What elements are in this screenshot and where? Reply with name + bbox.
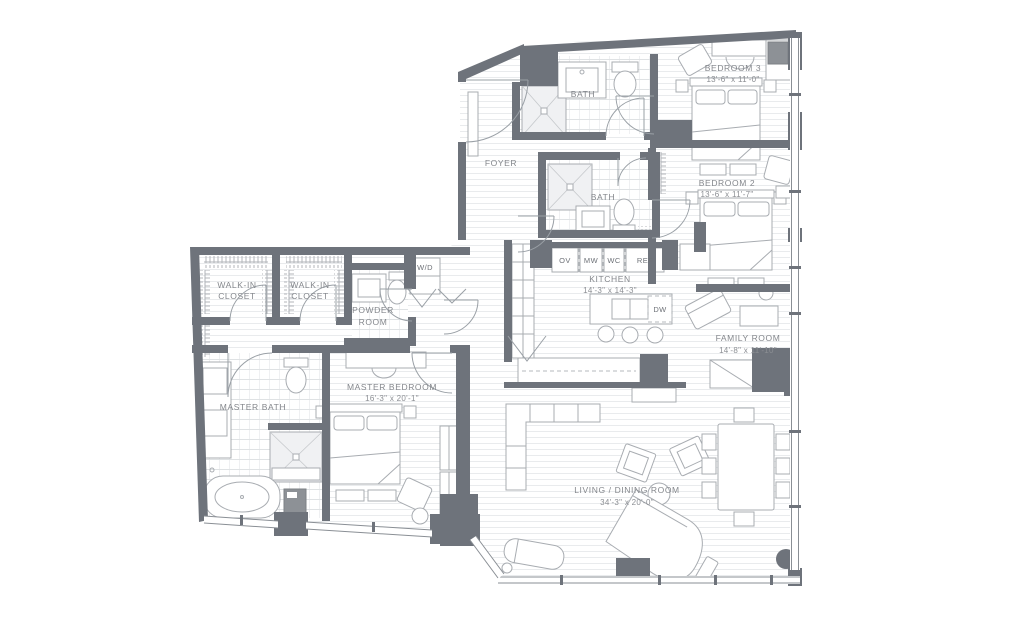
bedroom2-label: BEDROOM 2 bbox=[699, 178, 755, 188]
bedroom2-dims: 13'-6" x 11'-7" bbox=[700, 190, 753, 199]
master-bedroom-label: MASTER BEDROOM bbox=[347, 382, 437, 392]
dishwasher-label: DW bbox=[653, 305, 667, 314]
bath-top-label: BATH bbox=[571, 89, 595, 99]
microwave-label: MW bbox=[584, 256, 599, 265]
walk-in-closet-1-label-line2: CLOSET bbox=[218, 291, 256, 301]
wine-cooler-label: WC bbox=[607, 256, 620, 265]
walk-in-closet-1-label-line1: WALK-IN bbox=[217, 280, 256, 290]
family-room-label: FAMILY ROOM bbox=[716, 333, 781, 343]
master-bedroom-dims: 16'-3" x 20'-1" bbox=[365, 394, 419, 403]
master-bath-label: MASTER BATH bbox=[220, 402, 286, 412]
walk-in-closet-2-label-line1: WALK-IN bbox=[290, 280, 329, 290]
foyer-furniture bbox=[468, 92, 478, 156]
powder-room-label-line2: ROOM bbox=[359, 317, 388, 327]
powder-room-label-line1: POWDER bbox=[352, 305, 394, 315]
family-room-dims: 14'-8" x 11'-10" bbox=[719, 346, 777, 355]
walk-in-closet-2-label-line2: CLOSET bbox=[291, 291, 329, 301]
floor-plan: BEDROOM 3 13'-6" x 11'-0" BATH FOYER BED… bbox=[0, 0, 1024, 625]
living-dining-dims: 34'-3" x 20'-0" bbox=[600, 498, 654, 507]
kitchen-label: KITCHEN bbox=[589, 274, 631, 284]
washer-dryer-label: W/D bbox=[417, 263, 433, 272]
living-dining-label: LIVING / DINING ROOM bbox=[574, 485, 680, 495]
bedroom3-label: BEDROOM 3 bbox=[705, 63, 761, 73]
bath-mid-label: BATH bbox=[591, 192, 615, 202]
kitchen-dims: 14'-3" x 14'-3" bbox=[583, 286, 637, 295]
bedroom3-dims: 13'-6" x 11'-0" bbox=[706, 75, 759, 84]
powder-room-fixtures bbox=[352, 272, 406, 304]
refrigerator-label: REF bbox=[637, 256, 653, 265]
oven-label: OV bbox=[559, 256, 571, 265]
foyer-label: FOYER bbox=[485, 158, 517, 168]
